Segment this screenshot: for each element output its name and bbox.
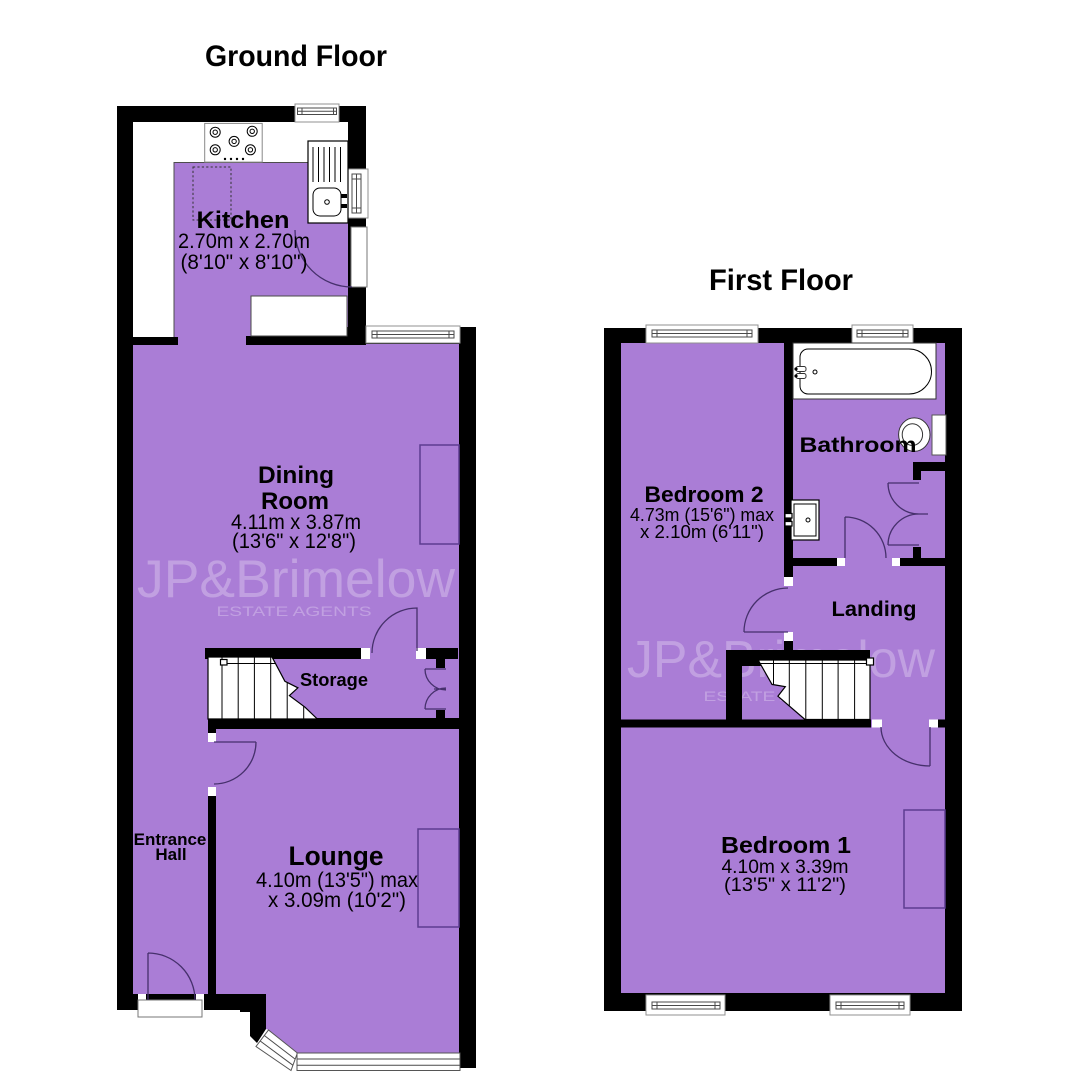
svg-text:Dining: Dining xyxy=(258,462,334,489)
svg-text:Hall: Hall xyxy=(155,845,186,864)
svg-text:Lounge: Lounge xyxy=(289,841,384,871)
svg-text:2.70m x 2.70m: 2.70m x 2.70m xyxy=(178,230,310,253)
svg-text:x 2.10m (6'11"): x 2.10m (6'11") xyxy=(640,522,764,542)
svg-text:(13'6" x 12'8"): (13'6" x 12'8") xyxy=(232,530,356,553)
svg-text:(13'5" x 11'2"): (13'5" x 11'2") xyxy=(724,874,846,896)
svg-text:Bedroom 2: Bedroom 2 xyxy=(645,482,764,507)
svg-text:(8'10" x 8'10"): (8'10" x 8'10") xyxy=(181,251,308,274)
svg-text:x 3.09m (10'2"): x 3.09m (10'2") xyxy=(268,889,406,912)
svg-text:Landing: Landing xyxy=(832,597,917,621)
svg-text:Ground Floor: Ground Floor xyxy=(205,40,388,73)
svg-text:Bedroom 1: Bedroom 1 xyxy=(721,832,851,858)
svg-text:Bathroom: Bathroom xyxy=(800,434,917,457)
svg-text:Storage: Storage xyxy=(300,669,368,690)
svg-text:ESTATE AGENTS: ESTATE AGENTS xyxy=(217,603,372,619)
svg-text:JP&Brimelow: JP&Brimelow xyxy=(137,550,456,609)
svg-text:First Floor: First Floor xyxy=(709,264,854,297)
